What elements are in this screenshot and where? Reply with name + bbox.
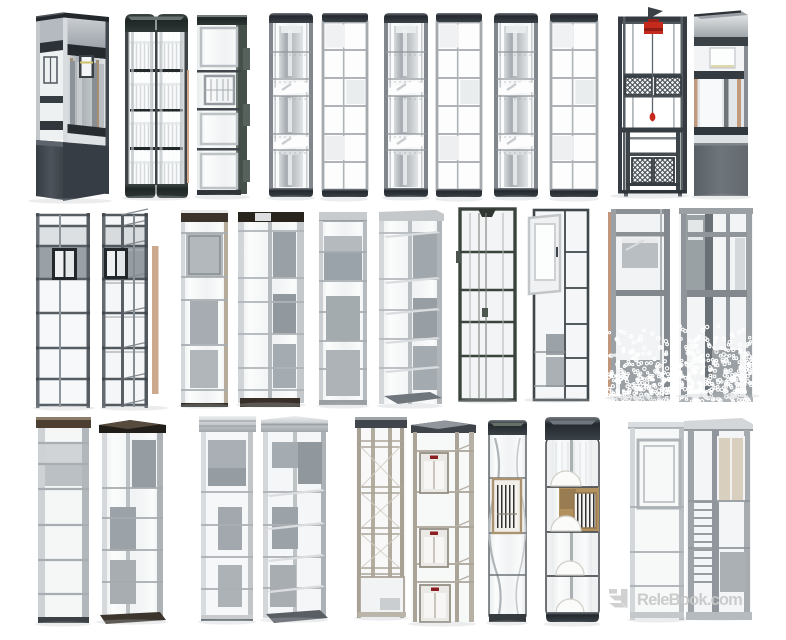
svg-text:ReleBook.com: ReleBook.com: [637, 591, 742, 609]
